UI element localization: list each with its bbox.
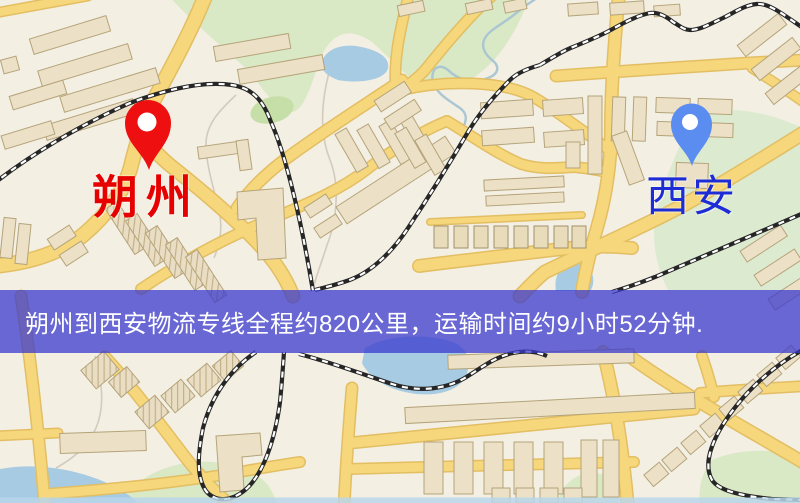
map-edge-strip	[0, 498, 800, 503]
map-view: 朔州 西安 朔州到西安物流专线全程约820公里，运输时间约9小时52分钟.	[0, 0, 800, 503]
route-summary-text: 朔州到西安物流专线全程约820公里，运输时间约9小时52分钟.	[0, 304, 703, 339]
destination-city-label: 西安	[646, 176, 738, 219]
map-canvas[interactable]	[0, 0, 800, 503]
origin-city-label: 朔州	[92, 174, 200, 220]
route-summary-banner: 朔州到西安物流专线全程约820公里，运输时间约9小时52分钟.	[0, 290, 800, 353]
